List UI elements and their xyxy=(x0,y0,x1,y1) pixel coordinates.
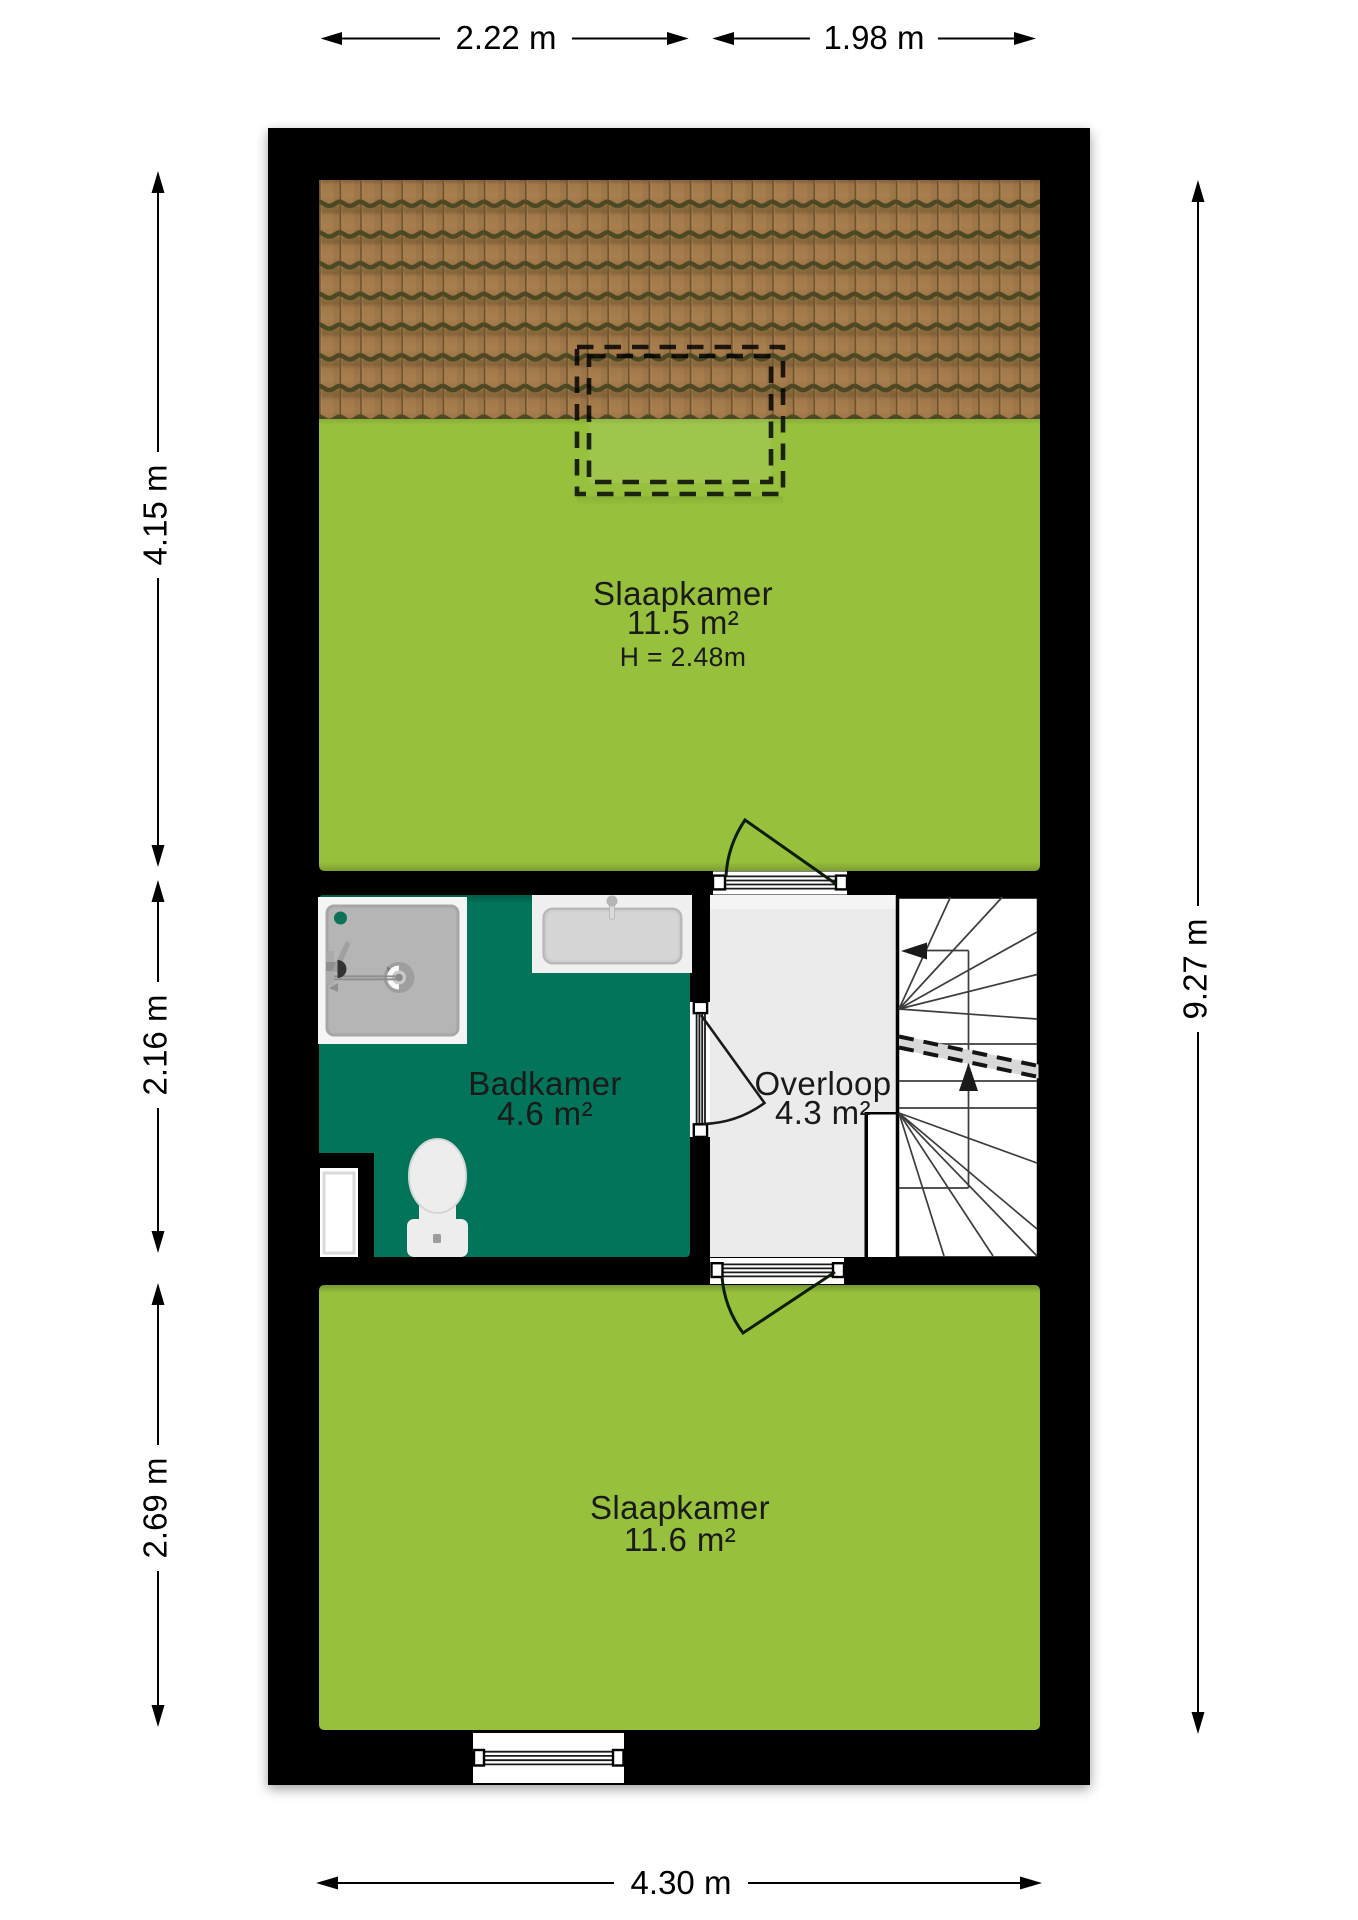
svg-text:4.3 m²: 4.3 m² xyxy=(775,1094,871,1131)
svg-text:11.6 m²: 11.6 m² xyxy=(624,1521,736,1558)
svg-text:2.22 m: 2.22 m xyxy=(456,19,557,56)
svg-text:4.15 m: 4.15 m xyxy=(137,465,174,566)
svg-text:H = 2.48m: H = 2.48m xyxy=(620,642,747,672)
svg-text:11.5 m²: 11.5 m² xyxy=(627,604,739,641)
svg-text:2.16 m: 2.16 m xyxy=(137,995,174,1096)
svg-text:4.6 m²: 4.6 m² xyxy=(497,1095,593,1132)
svg-text:4.30 m: 4.30 m xyxy=(631,1864,732,1901)
svg-text:2.69 m: 2.69 m xyxy=(137,1458,174,1559)
svg-text:9.27 m: 9.27 m xyxy=(1177,919,1214,1020)
svg-text:1.98 m: 1.98 m xyxy=(824,19,925,56)
